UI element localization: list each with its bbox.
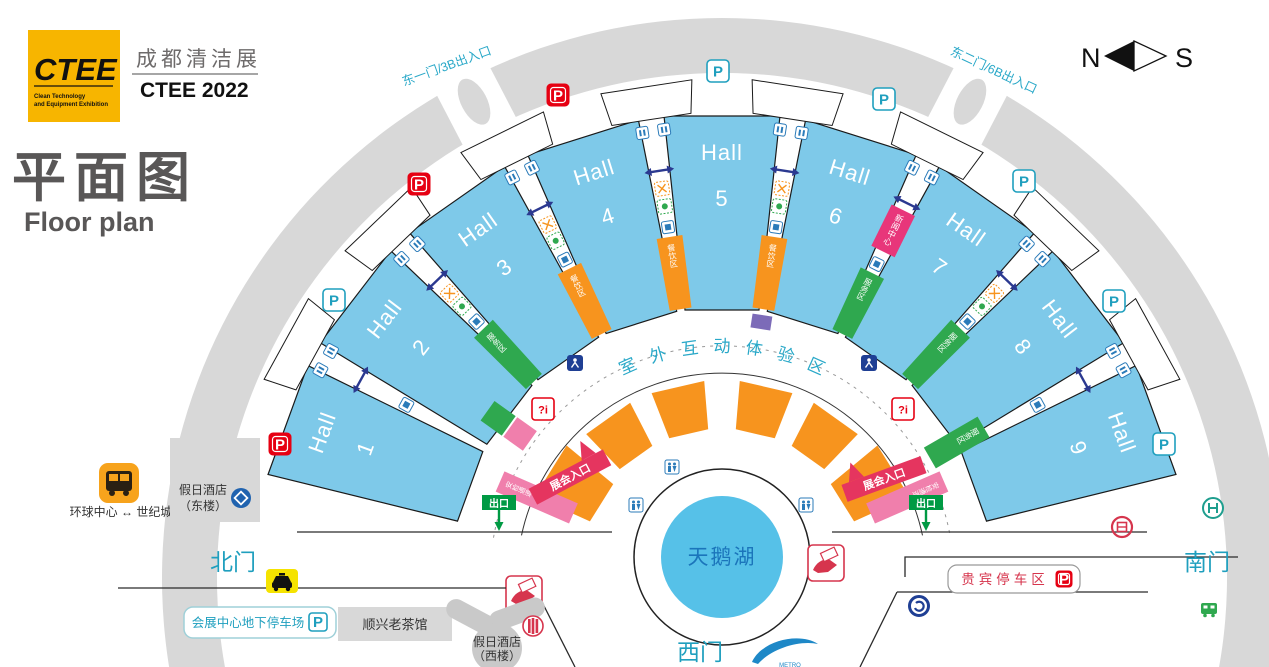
logo-acronym: CTEE xyxy=(34,52,118,87)
compass: N S xyxy=(1081,41,1193,73)
hotel-west: 假日酒店 （西楼） xyxy=(443,595,548,667)
parking-icon: P xyxy=(547,84,569,106)
hall-5-name: Hall xyxy=(701,140,743,165)
taxi-icon xyxy=(266,569,298,593)
event-name-cn: 成都清洁展 xyxy=(136,48,261,71)
plaza-title-char: 动 xyxy=(714,337,731,356)
hall-5-number: 5 xyxy=(715,186,728,211)
exit-arrow xyxy=(495,522,504,531)
info-icon: ?i xyxy=(892,398,914,420)
parking-icon: P xyxy=(323,289,345,311)
hotel-west-line1: 假日酒店 xyxy=(473,635,521,649)
dining-icon xyxy=(538,215,557,234)
hotel-east-line2: （东楼） xyxy=(179,498,227,513)
floor-plan-map: 东一门/3B出入口 东二门/6B出入口 CTEE Clean Technolog… xyxy=(0,0,1269,667)
vip-parking-label: 贵宾停车区 xyxy=(961,571,1049,587)
plaza-title-char: 室 xyxy=(616,354,639,378)
svg-text:P: P xyxy=(1019,174,1029,191)
info-icon: ?i xyxy=(532,398,554,420)
hotel-west-line2: （西楼） xyxy=(473,648,521,663)
plaza-title-char: 体 xyxy=(744,338,763,359)
bank-logo-striped-icon xyxy=(523,616,543,636)
svg-text:P: P xyxy=(1109,294,1119,311)
underground-parking-label: 会展中心地下停车场 xyxy=(192,615,305,630)
lake-label: 天鹅湖 xyxy=(688,546,757,569)
metro-logo: METRO xyxy=(752,638,818,667)
parking-icon: P xyxy=(873,88,895,110)
metro-label: METRO xyxy=(779,663,801,667)
toilet-icon xyxy=(773,123,787,137)
activity-block xyxy=(652,381,715,440)
logo-tagline-2: and Equipment Exhibition xyxy=(34,102,108,108)
parking-icon: P xyxy=(707,60,729,82)
ticket-office-icon xyxy=(808,545,844,581)
recycle-icon xyxy=(771,198,787,214)
bank-logo-swirl-icon xyxy=(910,597,929,616)
recycle-icon xyxy=(657,198,673,214)
plaza-title-char: 外 xyxy=(647,344,669,367)
exit-sign-right: 出口 xyxy=(909,495,943,531)
toilet-icon xyxy=(795,126,809,140)
activity-block xyxy=(786,403,858,473)
teahouse: 顺兴老茶馆 xyxy=(338,607,452,641)
swan-lake: 天鹅湖 xyxy=(634,469,810,645)
activity-block xyxy=(729,381,792,440)
dining-icon xyxy=(774,181,790,197)
exit-sign-left: 出口 xyxy=(482,495,516,531)
toilet-icon xyxy=(799,498,813,512)
hotel-east: 假日酒店 （东楼） xyxy=(170,438,260,522)
bus-icon xyxy=(99,463,139,503)
exit-arrow xyxy=(922,522,931,531)
plaza-title-char: 区 xyxy=(805,354,828,378)
parking-icon: P xyxy=(1103,290,1125,312)
charging-station-icon xyxy=(567,355,583,371)
toilet-icon xyxy=(657,123,671,137)
floor-plan-page: 东一门/3B出入口 东二门/6B出入口 CTEE Clean Technolog… xyxy=(0,0,1269,667)
service-icon-blue xyxy=(661,220,675,234)
parking-icon: P xyxy=(309,613,327,631)
plaza-title-char: 验 xyxy=(775,344,797,367)
dining-icon xyxy=(654,181,670,197)
svg-text:P: P xyxy=(879,92,889,109)
page-title-en: Floor plan xyxy=(24,207,155,237)
south-gate-label: 南门 xyxy=(1184,549,1230,575)
compass-south: S xyxy=(1175,43,1193,73)
parking-icon: P xyxy=(408,173,430,195)
vip-parking: 贵宾停车区 P xyxy=(948,565,1080,593)
charging-station-icon xyxy=(861,355,877,371)
shuttle-label: 环球中心 ↔ 世纪城 xyxy=(70,504,173,519)
logo-block: CTEE Clean Technology and Equipment Exhi… xyxy=(28,30,261,122)
svg-text:?i: ?i xyxy=(898,405,908,417)
west-road-line xyxy=(541,600,575,667)
teahouse-label: 顺兴老茶馆 xyxy=(362,617,427,632)
svg-text:P: P xyxy=(713,64,723,81)
svg-text:P: P xyxy=(414,177,424,194)
compass-needle-black xyxy=(1104,41,1134,71)
bank-logo-red-icon xyxy=(1112,517,1132,537)
svg-text:P: P xyxy=(1159,437,1169,454)
svg-text:P: P xyxy=(313,614,323,631)
bank-logo-blue-icon xyxy=(231,488,251,508)
toilet-icon xyxy=(629,498,643,512)
bus-stop-green-icon xyxy=(1201,603,1217,617)
page-title-cn: 平面图 xyxy=(12,148,198,208)
event-name-en: CTEE 2022 xyxy=(140,79,249,102)
shuttle-stop: 环球中心 ↔ 世纪城 xyxy=(70,463,173,519)
north-gate-label: 北门 xyxy=(210,549,256,575)
plaza-title-char: 互 xyxy=(680,338,699,359)
svg-text:P: P xyxy=(1059,571,1069,588)
purple-service-block xyxy=(750,314,772,331)
svg-text:P: P xyxy=(553,88,563,105)
parking-icon: P xyxy=(269,433,291,455)
service-icon-blue xyxy=(769,220,783,234)
toilet-icon xyxy=(636,126,650,140)
svg-text:?i: ?i xyxy=(538,405,548,417)
toilet-icon xyxy=(665,460,679,474)
hotel-east-line1: 假日酒店 xyxy=(179,483,227,497)
west-gate-label: 西门 xyxy=(677,639,723,665)
hotel-logo-icon xyxy=(1203,498,1223,518)
parking-icon: P xyxy=(1153,433,1175,455)
west-road-line xyxy=(860,592,897,667)
compass-north: N xyxy=(1081,43,1101,73)
svg-text:出口: 出口 xyxy=(916,497,936,510)
parking-icon: P xyxy=(1056,571,1072,588)
parking-icon: P xyxy=(1013,170,1035,192)
svg-text:P: P xyxy=(329,293,339,310)
compass-needle-white xyxy=(1134,41,1166,71)
svg-text:P: P xyxy=(275,437,285,454)
svg-text:出口: 出口 xyxy=(489,497,509,510)
underground-parking: 会展中心地下停车场 P xyxy=(184,607,336,638)
logo-tagline-1: Clean Technology xyxy=(34,94,86,100)
